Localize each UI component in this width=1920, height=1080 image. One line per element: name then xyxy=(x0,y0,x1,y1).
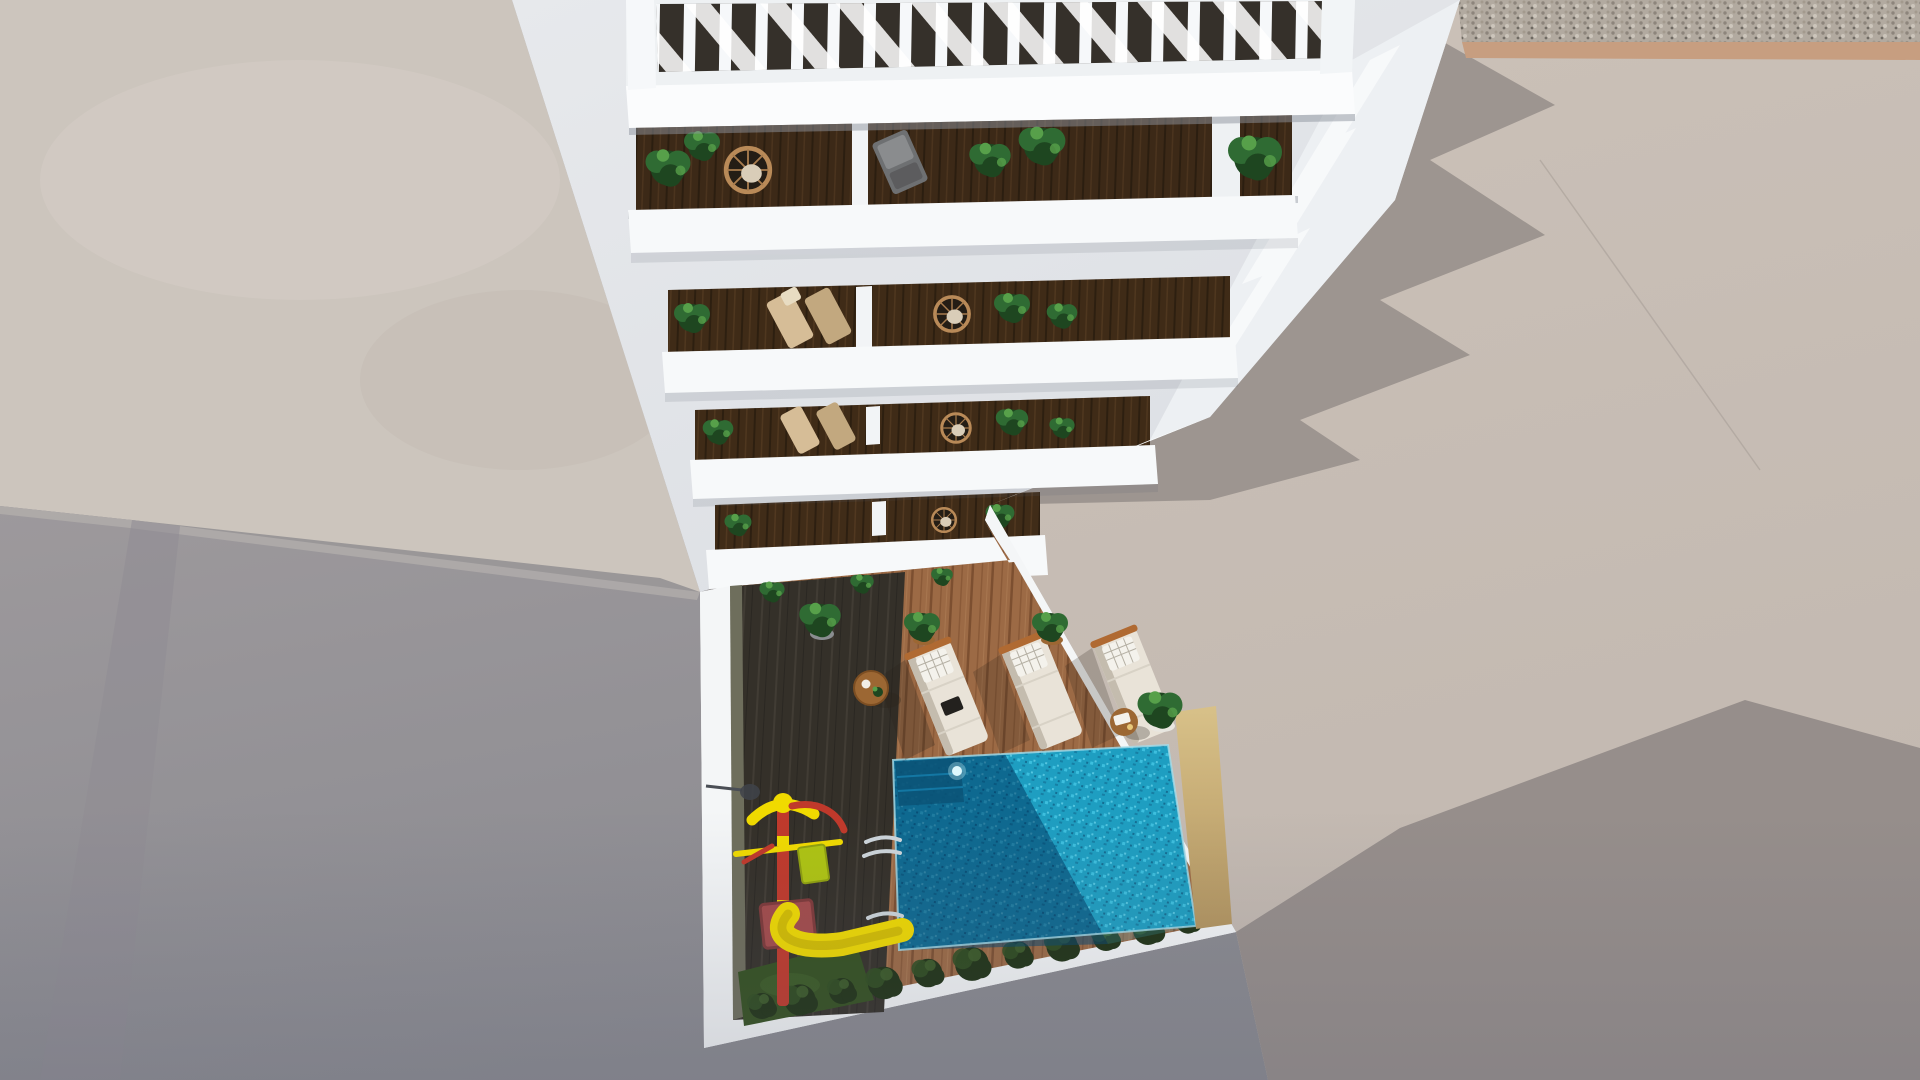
render-canvas xyxy=(0,0,1920,1080)
vignette-overlay xyxy=(0,0,1920,1080)
aerial-building-render xyxy=(0,0,1920,1080)
